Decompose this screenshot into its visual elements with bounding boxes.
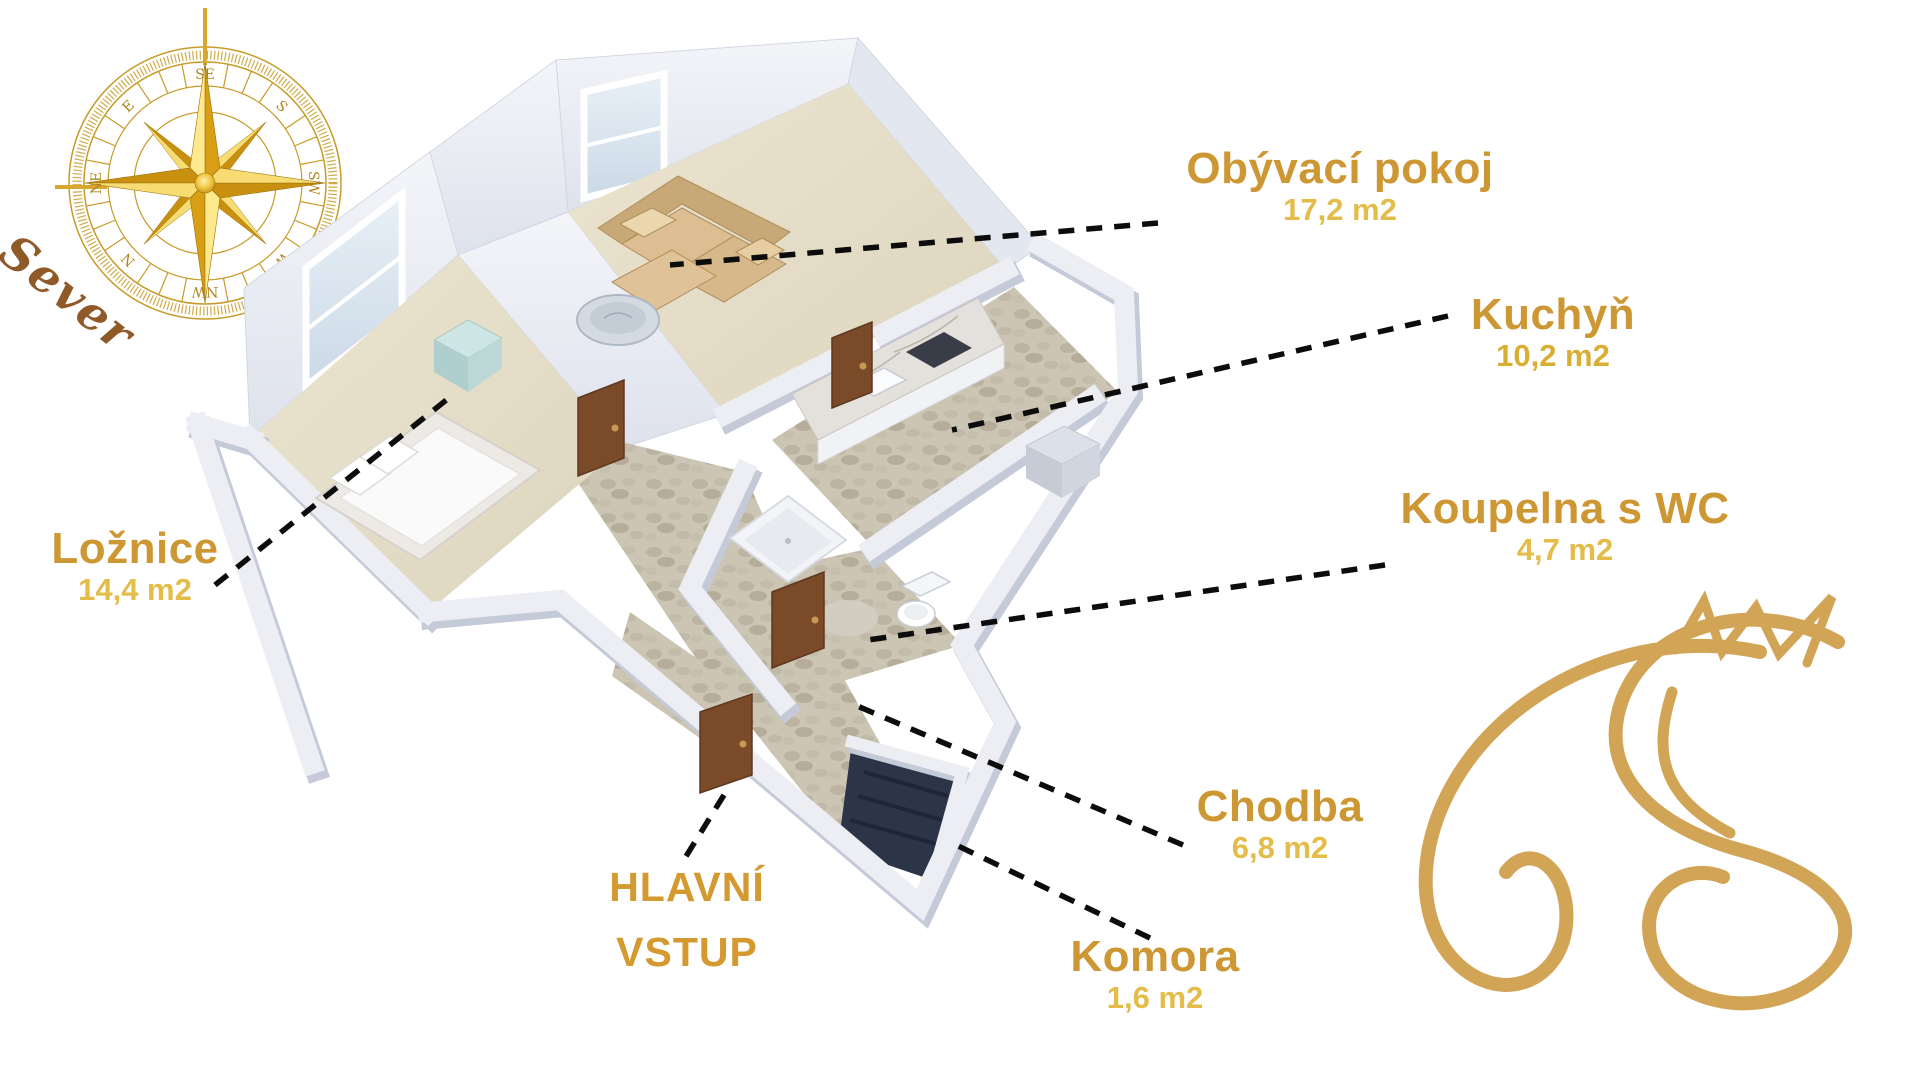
compass-direction-label: N — [119, 249, 139, 269]
compass-direction-label: S — [272, 98, 290, 116]
entrance-label: HLAVNÍ VSTUP — [537, 855, 837, 985]
compass-direction-label: NE — [89, 172, 105, 194]
floor-plan-page: SE S SW W NW N NE E — [0, 0, 1920, 1080]
entrance-line2: VSTUP — [537, 920, 837, 985]
compass-direction-label: E — [119, 97, 138, 116]
leader-line-vstup — [685, 795, 724, 858]
compass-direction-label: SE — [195, 67, 215, 83]
floor-plan-canvas: SE S SW W NW N NE E — [0, 0, 1920, 1080]
leader-line-komora — [952, 843, 1150, 938]
bath-rug — [818, 600, 878, 636]
coffee-table — [577, 295, 659, 345]
floor-plan — [198, 38, 1132, 911]
compass-direction-label: NW — [191, 283, 218, 299]
logo-monogram — [1426, 597, 1845, 1003]
compass-direction-label: SW — [305, 171, 321, 196]
entrance-line1: HLAVNÍ — [537, 855, 837, 920]
